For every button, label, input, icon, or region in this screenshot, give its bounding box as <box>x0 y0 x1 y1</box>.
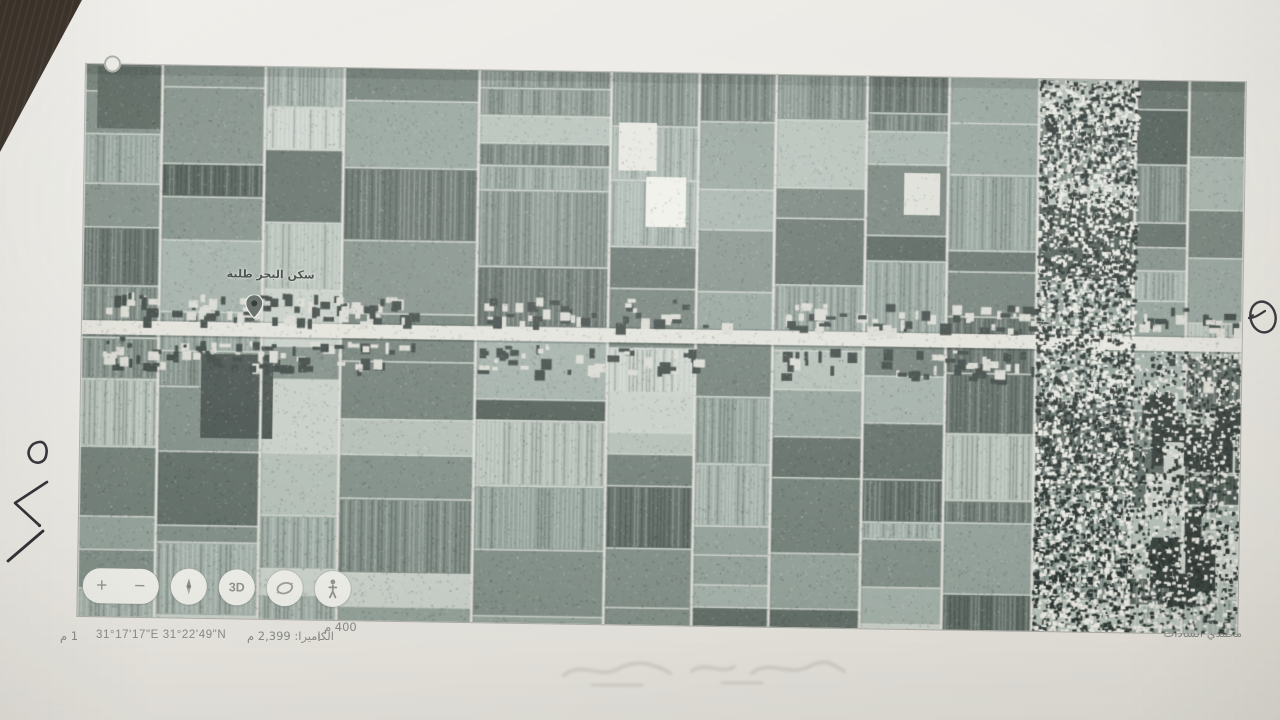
orbit-icon <box>274 577 296 599</box>
satellite-map <box>77 64 1246 634</box>
pegman-icon <box>324 578 342 600</box>
map-pin-label: سكن البحر طلبة <box>215 267 327 282</box>
elevation-readout: 1 م <box>60 629 78 643</box>
compass-button[interactable] <box>171 568 208 605</box>
handwritten-circle-annotation <box>1236 292 1280 344</box>
zoom-control: + − <box>83 568 160 604</box>
handwritten-page-number <box>2 430 58 570</box>
map-pin-icon[interactable] <box>245 295 263 319</box>
pegman-button[interactable] <box>315 571 352 608</box>
compass-needle-icon <box>179 577 199 597</box>
paper-sheet: سكن البحر طلبة + − 3D <box>0 0 1280 720</box>
zoom-in-button[interactable]: + <box>96 576 107 595</box>
printed-screenshot: سكن البحر طلبة + − 3D <box>77 64 1246 682</box>
3d-button-label: 3D <box>229 580 245 594</box>
orbit-button[interactable] <box>267 570 304 607</box>
map-controls: + − 3D <box>83 567 352 607</box>
zoom-out-button[interactable]: − <box>134 576 145 595</box>
handwritten-page-number-text: ٥٧١ <box>0 0 1 1</box>
3d-button[interactable]: 3D <box>219 569 256 606</box>
photo-of-printed-map: سكن البحر طلبة + − 3D <box>0 0 1280 720</box>
